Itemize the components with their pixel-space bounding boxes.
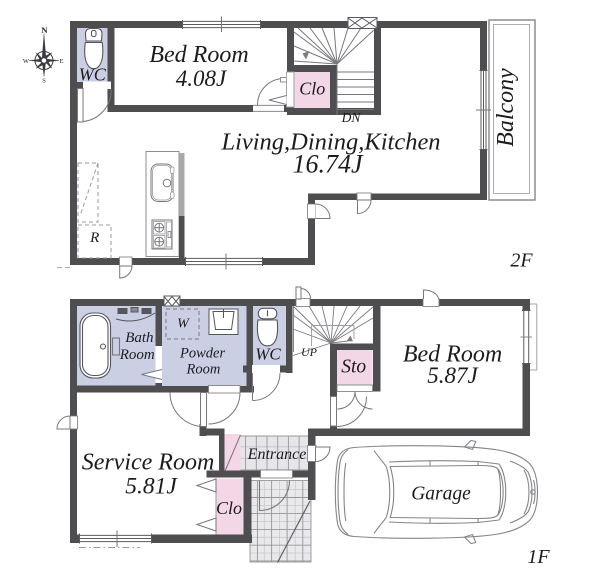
svg-text:Entrance: Entrance [247,446,307,463]
svg-text:Powder: Powder [179,346,225,362]
svg-text:5.87J: 5.87J [427,363,479,388]
svg-text:1F: 1F [527,546,550,568]
svg-text:Room: Room [185,362,220,378]
svg-text:Sto: Sto [341,357,366,378]
svg-text:5.81J: 5.81J [125,474,178,500]
svg-text:2F: 2F [510,250,533,272]
svg-text:W: W [23,58,30,65]
svg-text:4.08J: 4.08J [176,66,228,91]
svg-text:WC: WC [79,65,107,85]
svg-text:UP: UP [301,345,318,359]
svg-text:Bed Room: Bed Room [149,42,248,68]
svg-text:Service Room: Service Room [82,450,215,476]
svg-text:Garage: Garage [411,484,471,505]
svg-text:DN: DN [341,110,362,125]
svg-text:N: N [41,25,48,35]
svg-text:Clo: Clo [216,498,242,518]
svg-text:S: S [42,78,46,85]
svg-text:WC: WC [255,345,281,364]
svg-text:Room: Room [119,347,155,363]
svg-text:R: R [89,230,99,246]
svg-text:16.74J: 16.74J [292,150,364,179]
svg-text:Bath: Bath [125,330,153,346]
svg-text:E: E [60,58,64,65]
svg-text:Clo: Clo [299,79,325,99]
svg-text:W: W [177,317,190,332]
svg-text:Balcony: Balcony [493,68,519,147]
